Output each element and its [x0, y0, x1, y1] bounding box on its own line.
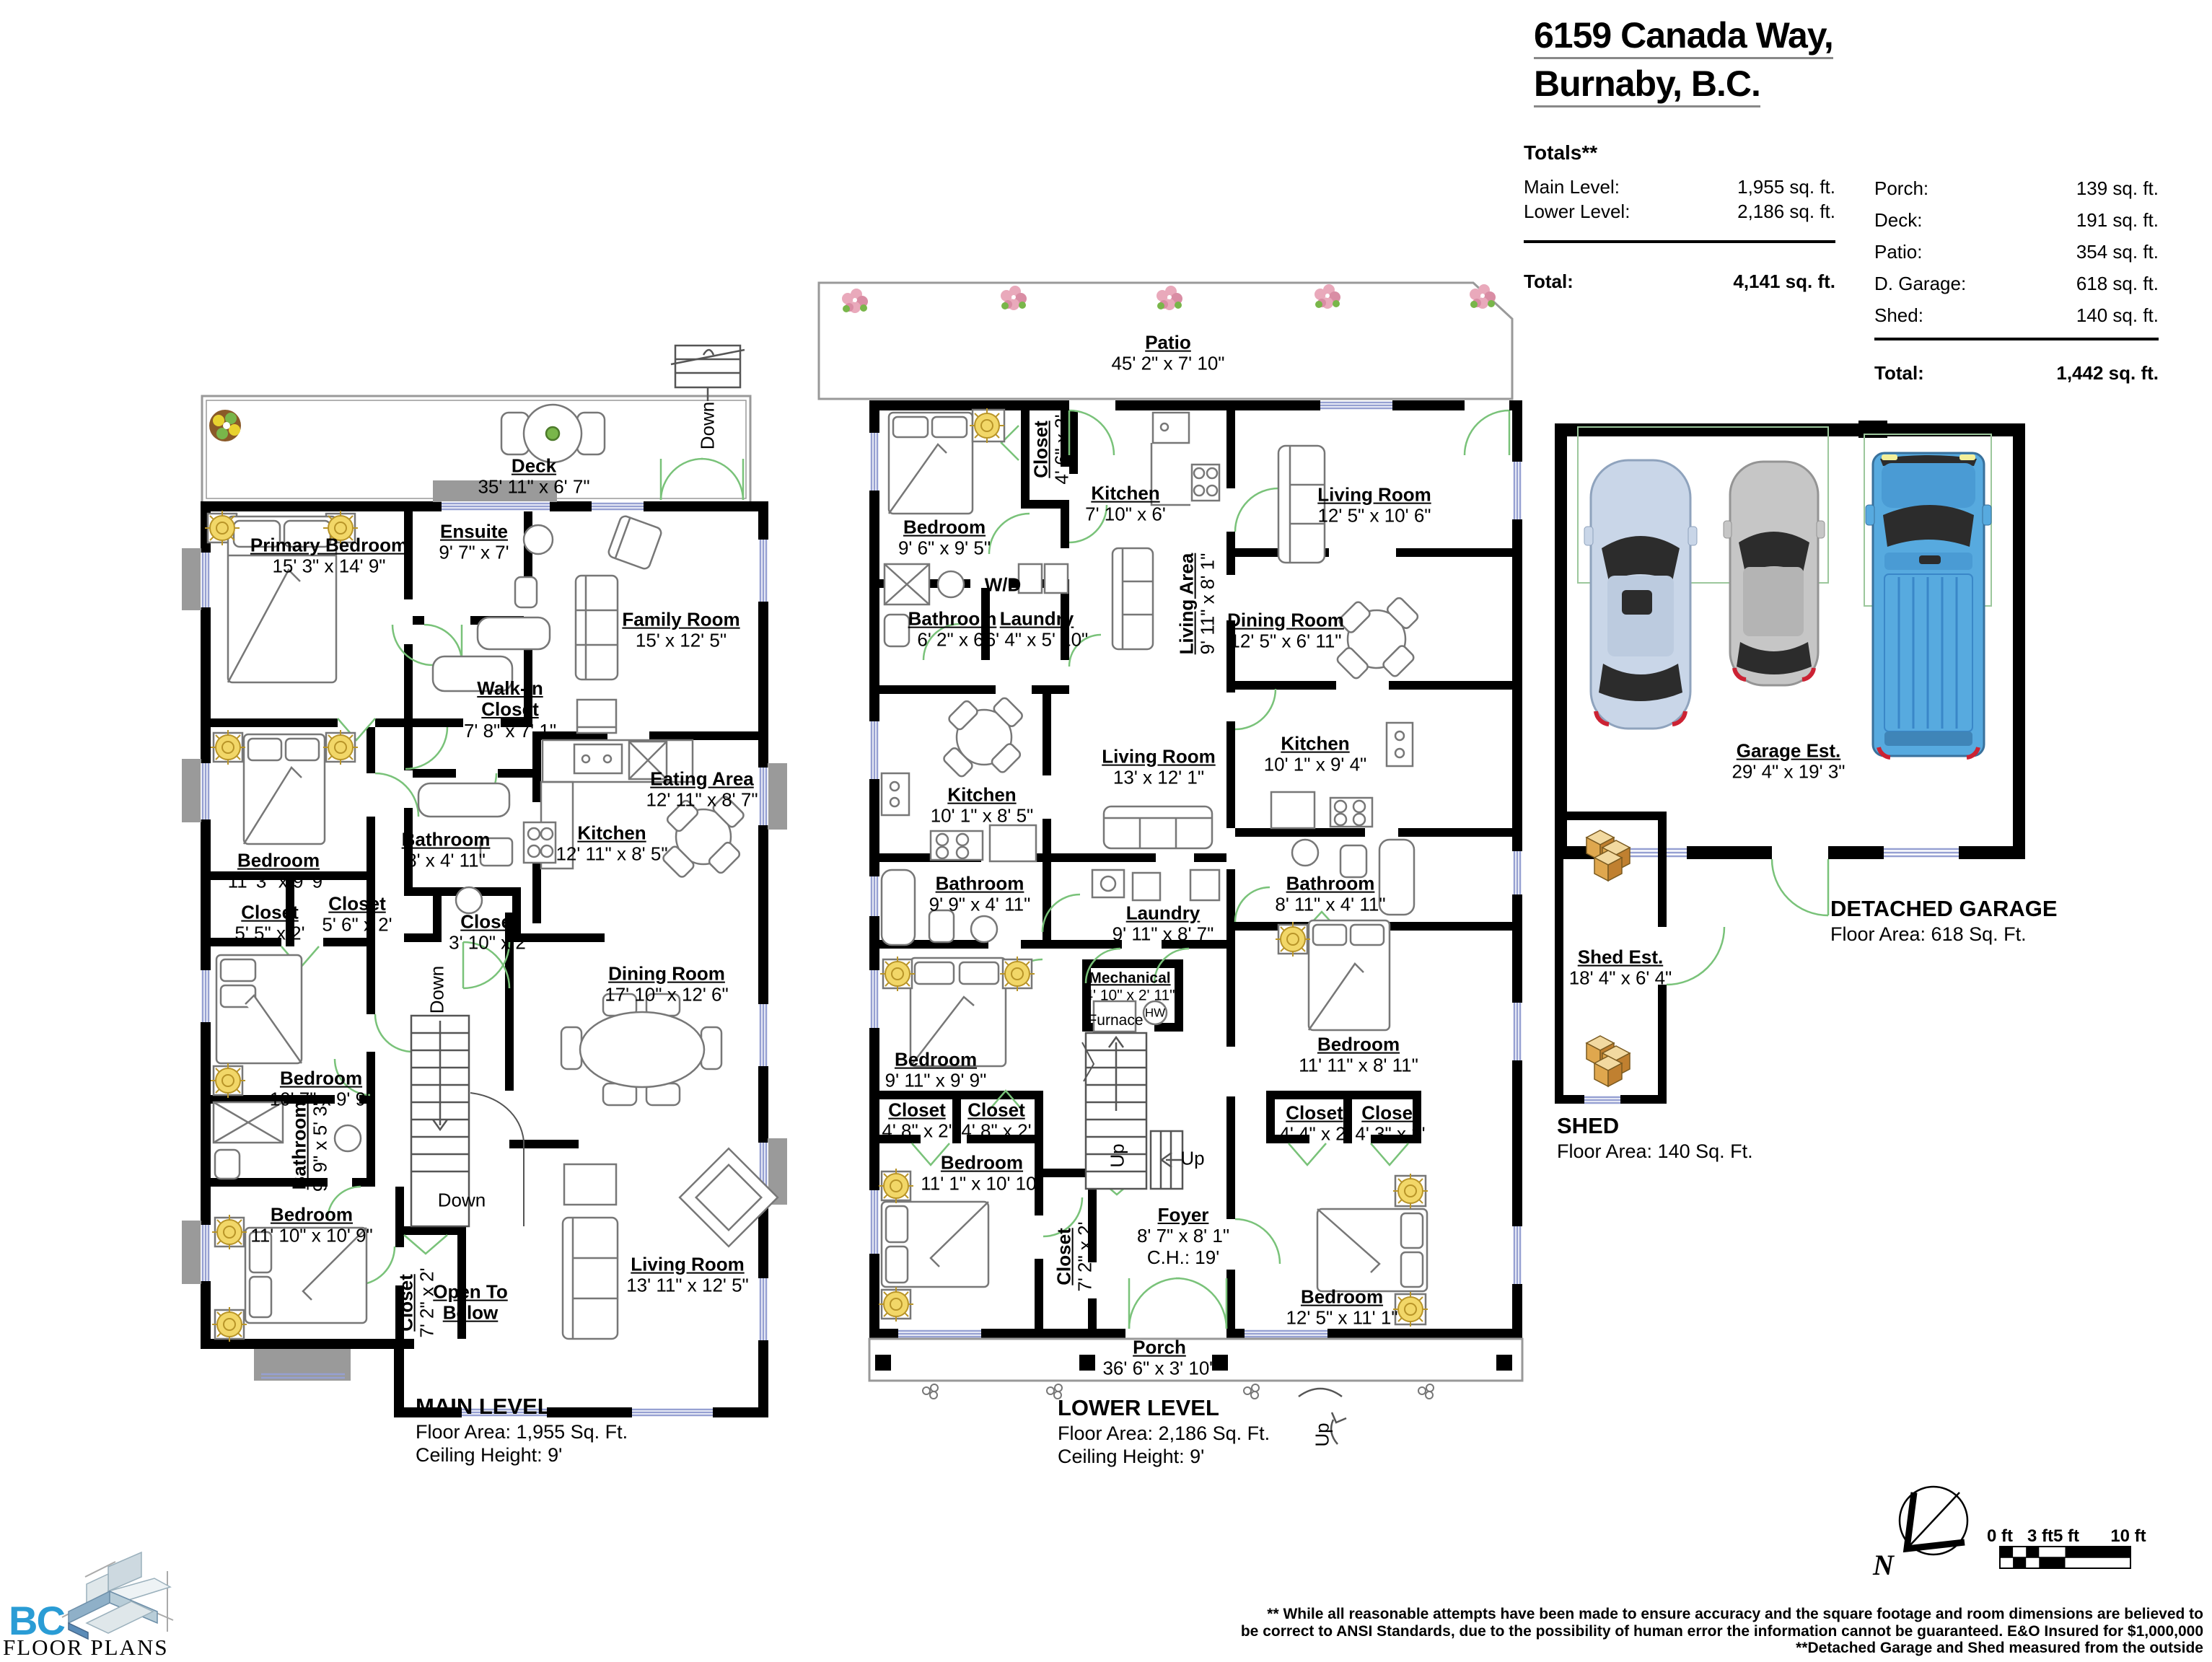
room-dimensions: 15' 3" x 14' 9"	[250, 556, 408, 577]
row-label: Total:	[1874, 362, 1924, 384]
deck-plant-icon	[209, 410, 241, 441]
compass-icon	[1900, 1487, 1967, 1555]
room-name: Living Room	[1102, 747, 1215, 768]
room-dimensions: 9' 7" x 7'	[439, 542, 509, 563]
porch-label: Porch36' 6" x 3' 10"	[1102, 1337, 1216, 1380]
divider	[1524, 240, 1835, 243]
room-name: Closet	[882, 1100, 952, 1121]
closet-label: Closet4' 3" x 2'	[1355, 1103, 1425, 1146]
room-name: Closet	[961, 1100, 1031, 1121]
closet-label: Closet5' 5" x 2'	[234, 902, 304, 945]
deck-stairs	[671, 346, 745, 401]
living-room-label: Living Room13' 11" x 12' 5"	[626, 1254, 749, 1297]
bathroom-label: Bathroom8' 11" x 4' 11"	[1275, 874, 1385, 916]
room-name: Bathroom	[402, 830, 491, 850]
closet-label: Closet3' 10" x 2'	[449, 912, 530, 954]
open-to-label: Open ToBelow	[433, 1282, 508, 1324]
main-level-caption: MAIN LEVEL Floor Area: 1,955 Sq. Ft. Cei…	[416, 1395, 628, 1465]
bedroom-label: Bedroom11' 10" x 10' 9"	[250, 1205, 373, 1247]
bathroom-label: Bathroom6' 2" x 6'	[908, 609, 997, 651]
up-label: Up	[1312, 1423, 1333, 1446]
scale-bar	[2000, 1547, 2130, 1568]
closet-label: Closet5' 6" x 2'	[322, 894, 392, 936]
foyer-label: Foyer8' 7" x 8' 1"C.H.: 19'	[1137, 1205, 1229, 1268]
room-dimensions: 4' 8" x 2'	[961, 1121, 1031, 1142]
room-dimensions: 5' 6" x 2'	[322, 915, 392, 936]
room-name: Below	[433, 1303, 508, 1324]
bathroom-label: Bathroom9' 9" x 5' 3"	[289, 1099, 332, 1192]
room-name: Laundry	[1112, 903, 1214, 924]
up-label: Up	[1107, 1143, 1128, 1167]
ensuite-label: Ensuite9' 7" x 7'	[439, 522, 509, 564]
room-dimensions: 12' 11" x 8' 5"	[556, 844, 667, 865]
down-label: Down	[426, 966, 447, 1014]
room-name: Closet	[464, 699, 556, 720]
laundry-label: Laundry6' 4" x 5' 10"	[986, 609, 1089, 651]
row-label: Porch:	[1874, 177, 1928, 200]
bedroom-label: Bedroom9' 11" x 9' 9"	[885, 1050, 987, 1092]
deck-label: Deck35' 11" x 6' 7"	[478, 456, 589, 498]
bathroom-label: Bathroom9' 9" x 4' 11"	[929, 874, 1031, 916]
room-dimensions: 9' 11" x 8' 7"	[1112, 924, 1214, 945]
room-name: Bedroom	[1299, 1034, 1418, 1055]
room-name: Closet	[234, 902, 304, 923]
room-dimensions: 4' 6" x 2'	[1052, 414, 1073, 484]
room-name: Bedroom	[270, 1068, 373, 1089]
level-floor-area: Floor Area: 1,955 Sq. Ft.	[416, 1423, 628, 1442]
row-label: Main Level:	[1524, 176, 1620, 198]
room-dimensions: 11' 3" x 9' 9"	[228, 871, 330, 892]
room-name: Mechanical	[1084, 969, 1175, 987]
disclaimer-line: **Detached Garage and Shed measured from…	[1121, 1640, 2203, 1657]
room-dimensions: 4' 3" x 2'	[1355, 1124, 1425, 1145]
row-label: Patio:	[1874, 241, 1923, 263]
room-name: Bathroom	[908, 609, 997, 630]
row-value: 139 sq. ft.	[2076, 177, 2159, 200]
room-dimensions: 12' 5" x 6' 11"	[1227, 631, 1344, 652]
room-dimensions: 13' x 12' 1"	[1102, 768, 1215, 788]
family-room-label: Family Room15' x 12' 5"	[622, 610, 739, 652]
room-name: Laundry	[986, 609, 1089, 630]
row-value: 4,141 sq. ft.	[1733, 271, 1835, 293]
room-name: Kitchen	[1264, 734, 1367, 755]
scale-tick: 5 ft	[2053, 1526, 2079, 1547]
room-dimensions: 13' 11" x 12' 5"	[626, 1275, 749, 1296]
logo-floorplans-text: FLOOR PLANS	[3, 1635, 169, 1661]
totals-row: D. Garage: 618 sq. ft.	[1874, 273, 2159, 295]
totals-total-row: Total: 1,442 sq. ft.	[1874, 362, 2159, 384]
closet-label: Closet7' 2" x 2'	[396, 1267, 439, 1337]
lower-level-plan	[819, 283, 1522, 1444]
room-name: Foyer	[1137, 1205, 1229, 1226]
level-title: MAIN LEVEL	[416, 1395, 628, 1417]
room-dimensions: 9' 9" x 4' 11"	[929, 894, 1031, 915]
down-label: Down	[697, 402, 718, 449]
row-value: 1,442 sq. ft.	[2056, 362, 2159, 384]
room-dimensions: 4' 8" x 2'	[882, 1121, 952, 1142]
room-dimensions: 12' 11" x 8' 7"	[646, 790, 758, 811]
row-label: Total:	[1524, 271, 1574, 293]
lower-level-caption: LOWER LEVEL Floor Area: 2,186 Sq. Ft. Ce…	[1058, 1397, 1270, 1467]
shed-window	[1584, 1095, 1620, 1104]
room-dimensions: 12' 5" x 11' 1"	[1286, 1308, 1397, 1329]
room-name: Down	[697, 402, 718, 449]
logo-3d-floorplan-icon	[62, 1552, 173, 1639]
scale-tick: 3 ft	[2027, 1526, 2053, 1547]
room-name: Kitchen	[556, 823, 667, 844]
room-name: HW	[1145, 1006, 1165, 1019]
room-name: Bathroom	[289, 1099, 310, 1192]
room-name: Garage Est.	[1732, 741, 1845, 762]
room-name: Eating Area	[646, 769, 758, 790]
bedroom-label: Bedroom12' 5" x 11' 1"	[1286, 1287, 1397, 1329]
room-name: Closet	[322, 894, 392, 915]
room-name: Shed Est.	[1569, 947, 1672, 968]
room-name: Closet	[1279, 1103, 1349, 1124]
level-title: DETACHED GARAGE	[1830, 897, 2058, 920]
room-name: Walk-In	[464, 678, 556, 699]
room-name: Bedroom	[885, 1050, 987, 1070]
row-value: 2,186 sq. ft.	[1737, 201, 1835, 223]
living-room-label: Living Room13' x 12' 1"	[1102, 747, 1215, 789]
room-name: Primary Bedroom	[250, 535, 408, 556]
room-name: Bathroom	[1275, 874, 1385, 894]
room-name: Bedroom	[228, 850, 330, 871]
row-value: 140 sq. ft.	[2076, 304, 2159, 327]
level-title: SHED	[1557, 1114, 1753, 1137]
room-name: Open To	[433, 1282, 508, 1303]
room-name: Up	[1180, 1148, 1204, 1169]
dining-room-label: Dining Room17' 10" x 12' 6"	[605, 964, 729, 1006]
room-name: Bedroom	[1286, 1287, 1397, 1308]
level-floor-area: Floor Area: 618 Sq. Ft.	[1830, 925, 2058, 944]
room-dimensions: 7' 2" x 2'	[1075, 1221, 1096, 1291]
closet-label: Closet4' 8" x 2'	[882, 1100, 952, 1143]
room-name: Patio	[1111, 333, 1224, 353]
row-label: D. Garage:	[1874, 273, 1966, 295]
totals-row: Lower Level: 2,186 sq. ft.	[1524, 201, 1835, 223]
north-label: N	[1873, 1548, 1894, 1582]
level-title: LOWER LEVEL	[1058, 1397, 1270, 1419]
room-dimensions: 9' 9" x 5' 3"	[310, 1099, 331, 1192]
row-value: 1,955 sq. ft.	[1737, 176, 1835, 198]
row-label: Lower Level:	[1524, 201, 1630, 223]
room-name: Ensuite	[439, 522, 509, 542]
kitchen-label: Kitchen7' 10" x 6'	[1085, 483, 1166, 526]
room-dimensions: 10' 1" x 8' 5"	[931, 806, 1034, 827]
kitchen-label: Kitchen10' 1" x 8' 5"	[931, 785, 1034, 827]
disclaimer-line: ** While all reasonable attempts have be…	[1121, 1606, 2203, 1623]
room-name: Down	[438, 1190, 486, 1210]
totals-heading: Totals**	[1524, 141, 1597, 164]
closet-label: Closet4' 8" x 2'	[961, 1100, 1031, 1143]
row-label: Shed:	[1874, 304, 1923, 327]
totals-row: Patio: 354 sq. ft.	[1874, 241, 2159, 263]
room-dimensions: 8' x 4' 11"	[402, 850, 491, 871]
room-dimensions: 8' 7" x 8' 1"	[1137, 1226, 1229, 1246]
room-name: Bedroom	[921, 1153, 1043, 1174]
room-dimensions: 15' x 12' 5"	[622, 630, 739, 651]
room-dimensions: 35' 11" x 6' 7"	[478, 477, 589, 498]
room-name: Closet	[1054, 1221, 1075, 1291]
patio-label: Patio45' 2" x 7' 10"	[1111, 333, 1224, 375]
row-value: 191 sq. ft.	[2076, 209, 2159, 232]
room-name: Bedroom	[898, 517, 991, 538]
room-name: Deck	[478, 456, 589, 477]
shed-est--label: Shed Est.18' 4" x 6' 4"	[1569, 947, 1672, 990]
room-name: Dining Room	[605, 964, 729, 985]
room-dimensions: 11' 10" x 10' 9"	[250, 1226, 373, 1246]
room-dimensions: 5' 5" x 2'	[234, 923, 304, 944]
room-name: Closet	[1355, 1103, 1425, 1124]
room-dimensions: 12' 5" x 10' 6"	[1317, 506, 1431, 527]
closet-label: Closet4' 6" x 2'	[1031, 414, 1074, 484]
scale-tick: 10 ft	[2110, 1526, 2146, 1547]
mechanical-label: Mechanical4' 10" x 2' 11"	[1084, 969, 1175, 1003]
room-name: Closet	[1031, 414, 1052, 484]
totals-row: Porch: 139 sq. ft.	[1874, 177, 2159, 200]
room-name: Kitchen	[1085, 483, 1166, 504]
bedroom-label: Bedroom11' 11" x 8' 11"	[1299, 1034, 1418, 1077]
room-dimensions: C.H.: 19'	[1137, 1247, 1229, 1268]
totals-row: Shed: 140 sq. ft.	[1874, 304, 2159, 327]
bedroom-label: Bedroom11' 1" x 10' 10"	[921, 1153, 1043, 1195]
laundry-label: Laundry9' 11" x 8' 7"	[1112, 903, 1214, 946]
room-dimensions: 11' 1" x 10' 10"	[921, 1174, 1043, 1195]
level-floor-area: Floor Area: 140 Sq. Ft.	[1557, 1142, 1753, 1161]
primary-bedroom-label: Primary Bedroom15' 3" x 14' 9"	[250, 535, 408, 578]
scale-tick: 0 ft	[1987, 1526, 2013, 1547]
garage-plan	[1555, 421, 2025, 915]
room-name: Bathroom	[929, 874, 1031, 894]
room-name: Closet	[449, 912, 530, 933]
floor-plan-sheet: 6159 Canada Way, Burnaby, B.C. Totals** …	[0, 0, 2212, 1662]
pickup-truck-icon	[1866, 453, 1991, 757]
shed-caption: SHED Floor Area: 140 Sq. Ft.	[1557, 1114, 1753, 1161]
walk-in-label: Walk-InCloset7' 8" x 7' 1"	[464, 678, 556, 742]
totals-row: Deck: 191 sq. ft.	[1874, 209, 2159, 232]
bedroom-label: Bedroom11' 3" x 9' 9"	[228, 850, 330, 893]
room-dimensions: 4' 4" x 2'	[1279, 1124, 1349, 1145]
furnace-label: Furnace	[1087, 1012, 1143, 1029]
totals-total-row: Total: 4,141 sq. ft.	[1524, 271, 1835, 293]
bathroom-label: Bathroom8' x 4' 11"	[402, 830, 491, 872]
room-dimensions: 18' 4" x 6' 4"	[1569, 968, 1672, 989]
room-name: Furnace	[1087, 1012, 1143, 1029]
room-name: Up	[1312, 1423, 1333, 1446]
room-dimensions: 6' 4" x 5' 10"	[986, 630, 1089, 651]
garage-caption: DETACHED GARAGE Floor Area: 618 Sq. Ft.	[1830, 897, 2058, 944]
room-dimensions: 45' 2" x 7' 10"	[1111, 353, 1224, 374]
disclaimer-text: ** While all reasonable attempts have be…	[1121, 1606, 2203, 1657]
row-value: 618 sq. ft.	[2076, 273, 2159, 295]
hw-label: HW	[1145, 1006, 1165, 1019]
row-value: 354 sq. ft.	[2076, 241, 2159, 263]
lower-stairs	[1082, 1033, 1182, 1189]
down-label: Down	[438, 1190, 486, 1210]
address-line-1: 6159 Canada Way,	[1534, 17, 1833, 59]
room-dimensions: 17' 10" x 12' 6"	[605, 985, 729, 1006]
room-name: Bedroom	[250, 1205, 373, 1226]
living-area-label: Living Area9' 11" x 8' 1"	[1177, 553, 1219, 655]
room-dimensions: 3' 10" x 2'	[449, 933, 530, 954]
garage-est--label: Garage Est.29' 4" x 19' 3"	[1732, 741, 1845, 783]
room-dimensions: 4' 10" x 2' 11"	[1084, 987, 1175, 1004]
room-dimensions: 9' 11" x 9' 9"	[885, 1070, 987, 1091]
kitchen-label: Kitchen10' 1" x 9' 4"	[1264, 734, 1367, 776]
room-dimensions: 11' 11" x 8' 11"	[1299, 1055, 1418, 1076]
level-ceiling-height: Ceiling Height: 9'	[1058, 1447, 1270, 1467]
closet-label: Closet7' 2" x 2'	[1054, 1221, 1097, 1291]
room-name: Up	[1107, 1143, 1128, 1167]
sedan-car-icon	[1584, 460, 1697, 729]
dining-room-label: Dining Room12' 5" x 6' 11"	[1227, 610, 1344, 653]
room-dimensions: 7' 10" x 6'	[1085, 504, 1166, 525]
room-name: Living Room	[1317, 485, 1431, 506]
w-d-label: W/D	[985, 574, 1022, 595]
room-name: Down	[426, 966, 447, 1014]
room-dimensions: 36' 6" x 3' 10"	[1102, 1358, 1216, 1379]
kitchen-label: Kitchen12' 11" x 8' 5"	[556, 823, 667, 866]
room-name: Family Room	[622, 610, 739, 630]
room-dimensions: 9' 6" x 9' 5"	[898, 538, 991, 559]
level-ceiling-height: Ceiling Height: 9'	[416, 1446, 628, 1465]
closet-label: Closet4' 4" x 2'	[1279, 1103, 1349, 1146]
room-dimensions: 9' 11" x 8' 1"	[1198, 553, 1219, 655]
deck-table	[501, 405, 605, 462]
room-name: Living Room	[626, 1254, 749, 1275]
living-room-label: Living Room12' 5" x 10' 6"	[1317, 485, 1431, 527]
totals-row: Main Level: 1,955 sq. ft.	[1524, 176, 1835, 198]
page-title: 6159 Canada Way, Burnaby, B.C.	[1534, 17, 1833, 114]
level-floor-area: Floor Area: 2,186 Sq. Ft.	[1058, 1424, 1270, 1443]
gray-car-icon	[1724, 462, 1825, 685]
room-dimensions: 7' 8" x 7' 1"	[464, 721, 556, 742]
bedroom-label: Bedroom9' 6" x 9' 5"	[898, 517, 991, 560]
room-dimensions: 6' 2" x 6'	[908, 630, 997, 651]
up-label: Up	[1180, 1148, 1204, 1169]
room-dimensions: 8' 11" x 4' 11"	[1275, 894, 1385, 915]
disclaimer-line: be correct to ANSI Standards, due to the…	[1121, 1623, 2203, 1640]
room-name: W/D	[985, 574, 1022, 595]
room-name: Living Area	[1177, 553, 1198, 655]
address-line-2: Burnaby, B.C.	[1534, 66, 1760, 107]
room-name: Closet	[396, 1267, 417, 1337]
room-name: Kitchen	[931, 785, 1034, 806]
room-dimensions: 29' 4" x 19' 3"	[1732, 762, 1845, 783]
room-name: Dining Room	[1227, 610, 1344, 631]
eating-area-label: Eating Area12' 11" x 8' 7"	[646, 769, 758, 812]
row-label: Deck:	[1874, 209, 1922, 232]
room-name: Porch	[1102, 1337, 1216, 1358]
room-dimensions: 10' 1" x 9' 4"	[1264, 755, 1367, 775]
divider	[1874, 338, 2159, 340]
